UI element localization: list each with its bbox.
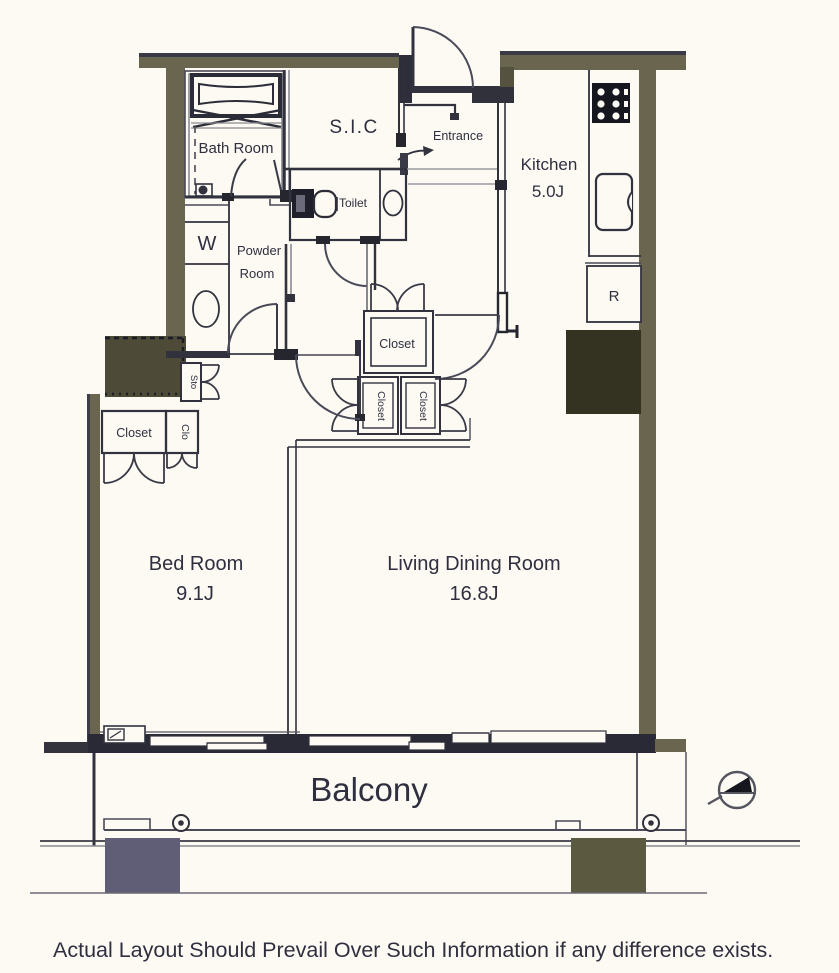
svg-text:Bed Room: Bed Room bbox=[149, 553, 244, 575]
svg-text:9.1J: 9.1J bbox=[176, 583, 214, 605]
svg-text:Actual Layout Should Prevail O: Actual Layout Should Prevail Over Such I… bbox=[53, 938, 773, 962]
svg-text:Entrance: Entrance bbox=[433, 129, 483, 143]
svg-text:Powder: Powder bbox=[237, 243, 282, 258]
svg-text:Closet: Closet bbox=[417, 391, 429, 421]
svg-text:S.I.C: S.I.C bbox=[329, 117, 378, 138]
svg-text:Kitchen: Kitchen bbox=[521, 155, 578, 174]
svg-text:W: W bbox=[198, 233, 217, 255]
svg-text:Closet: Closet bbox=[379, 337, 415, 351]
svg-text:Room: Room bbox=[240, 266, 275, 281]
svg-text:Closet: Closet bbox=[375, 391, 387, 421]
svg-text:Closet: Closet bbox=[116, 426, 152, 440]
svg-text:Sto: Sto bbox=[188, 375, 199, 389]
svg-text:Living Dining Room: Living Dining Room bbox=[387, 553, 560, 575]
svg-text:5.0J: 5.0J bbox=[532, 182, 564, 201]
svg-text:R: R bbox=[609, 288, 620, 305]
svg-text:Clo: Clo bbox=[179, 424, 191, 440]
svg-text:Bath Room: Bath Room bbox=[198, 140, 273, 157]
svg-text:16.8J: 16.8J bbox=[450, 583, 499, 605]
svg-text:Balcony: Balcony bbox=[310, 771, 428, 808]
svg-text:Toilet: Toilet bbox=[339, 196, 368, 210]
